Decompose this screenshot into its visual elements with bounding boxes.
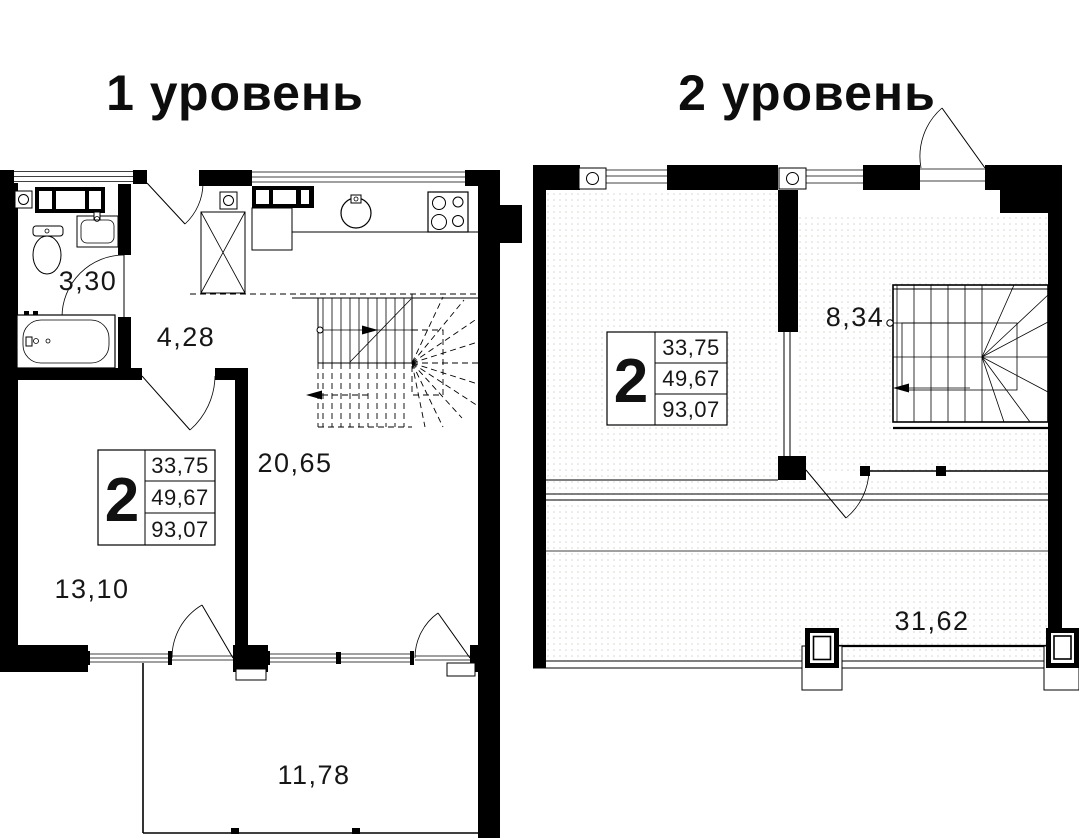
level2-area-row-3: 93,07 xyxy=(662,397,720,422)
stair-down-arrow-icon xyxy=(306,391,322,400)
label-terrace-area: 31,62 xyxy=(894,606,969,636)
label-hall-area: 4,28 xyxy=(157,322,216,352)
floor-plan-drawing: 1 уровень 2 уровень xyxy=(0,0,1079,838)
level2-title: 2 уровень xyxy=(678,65,936,121)
label-bedroom-area: 13,10 xyxy=(54,574,129,604)
level1-unit-box: 2 33,75 49,67 93,07 xyxy=(98,450,215,545)
label-living-area: 20,65 xyxy=(257,448,332,478)
level1-bottom-openings xyxy=(86,605,475,680)
level1-plan: 2 33,75 49,67 93,07 3,30 4,28 20,65 13,1… xyxy=(0,170,522,838)
level2-stairs xyxy=(887,285,1048,428)
level1-title: 1 уровень xyxy=(106,65,364,121)
living-balcony-door xyxy=(415,613,470,660)
vent-shaft-icon xyxy=(579,168,606,189)
label-balcony-area: 11,78 xyxy=(277,760,350,790)
vent-shaft-icon xyxy=(220,192,237,209)
stair-up-arrow-icon xyxy=(362,326,378,335)
level2-area-row-2: 49,67 xyxy=(662,366,720,391)
level1-balcony xyxy=(143,663,478,834)
level2-room-count: 2 xyxy=(614,347,648,416)
level1-room-count: 2 xyxy=(105,466,139,535)
stove-icon xyxy=(428,192,468,232)
level1-stairs xyxy=(190,294,478,427)
floor-plan-canvas: 1 уровень 2 уровень xyxy=(0,0,1079,838)
level2-unit-box: 2 33,75 49,67 93,07 xyxy=(607,332,727,425)
label-bathroom-area: 3,30 xyxy=(59,266,118,296)
level1-area-row-1: 33,75 xyxy=(151,453,209,478)
bathtub-icon xyxy=(17,311,115,368)
level1-area-row-3: 93,07 xyxy=(151,517,209,542)
vent-shaft-icon xyxy=(15,191,32,208)
terrace-column-icon xyxy=(1044,628,1079,690)
wardrobe-icon xyxy=(201,212,245,293)
level2-plan: 2 33,75 49,67 93,07 8,34 31,62 xyxy=(533,108,1079,690)
sink-icon xyxy=(77,212,118,247)
level1-area-row-2: 49,67 xyxy=(151,485,209,510)
stair-direction-arrow-icon xyxy=(893,384,909,393)
vent-shaft-icon xyxy=(779,168,806,189)
bedroom-door xyxy=(142,376,215,430)
kitchen-sink-icon xyxy=(341,195,371,228)
level2-area-row-1: 33,75 xyxy=(662,335,720,360)
kitchen xyxy=(252,186,478,298)
label-stair-hall-area: 8,34 xyxy=(826,302,885,332)
terrace-column-icon xyxy=(802,628,842,690)
bedroom-balcony-door xyxy=(172,605,233,660)
entry-door xyxy=(147,183,203,224)
